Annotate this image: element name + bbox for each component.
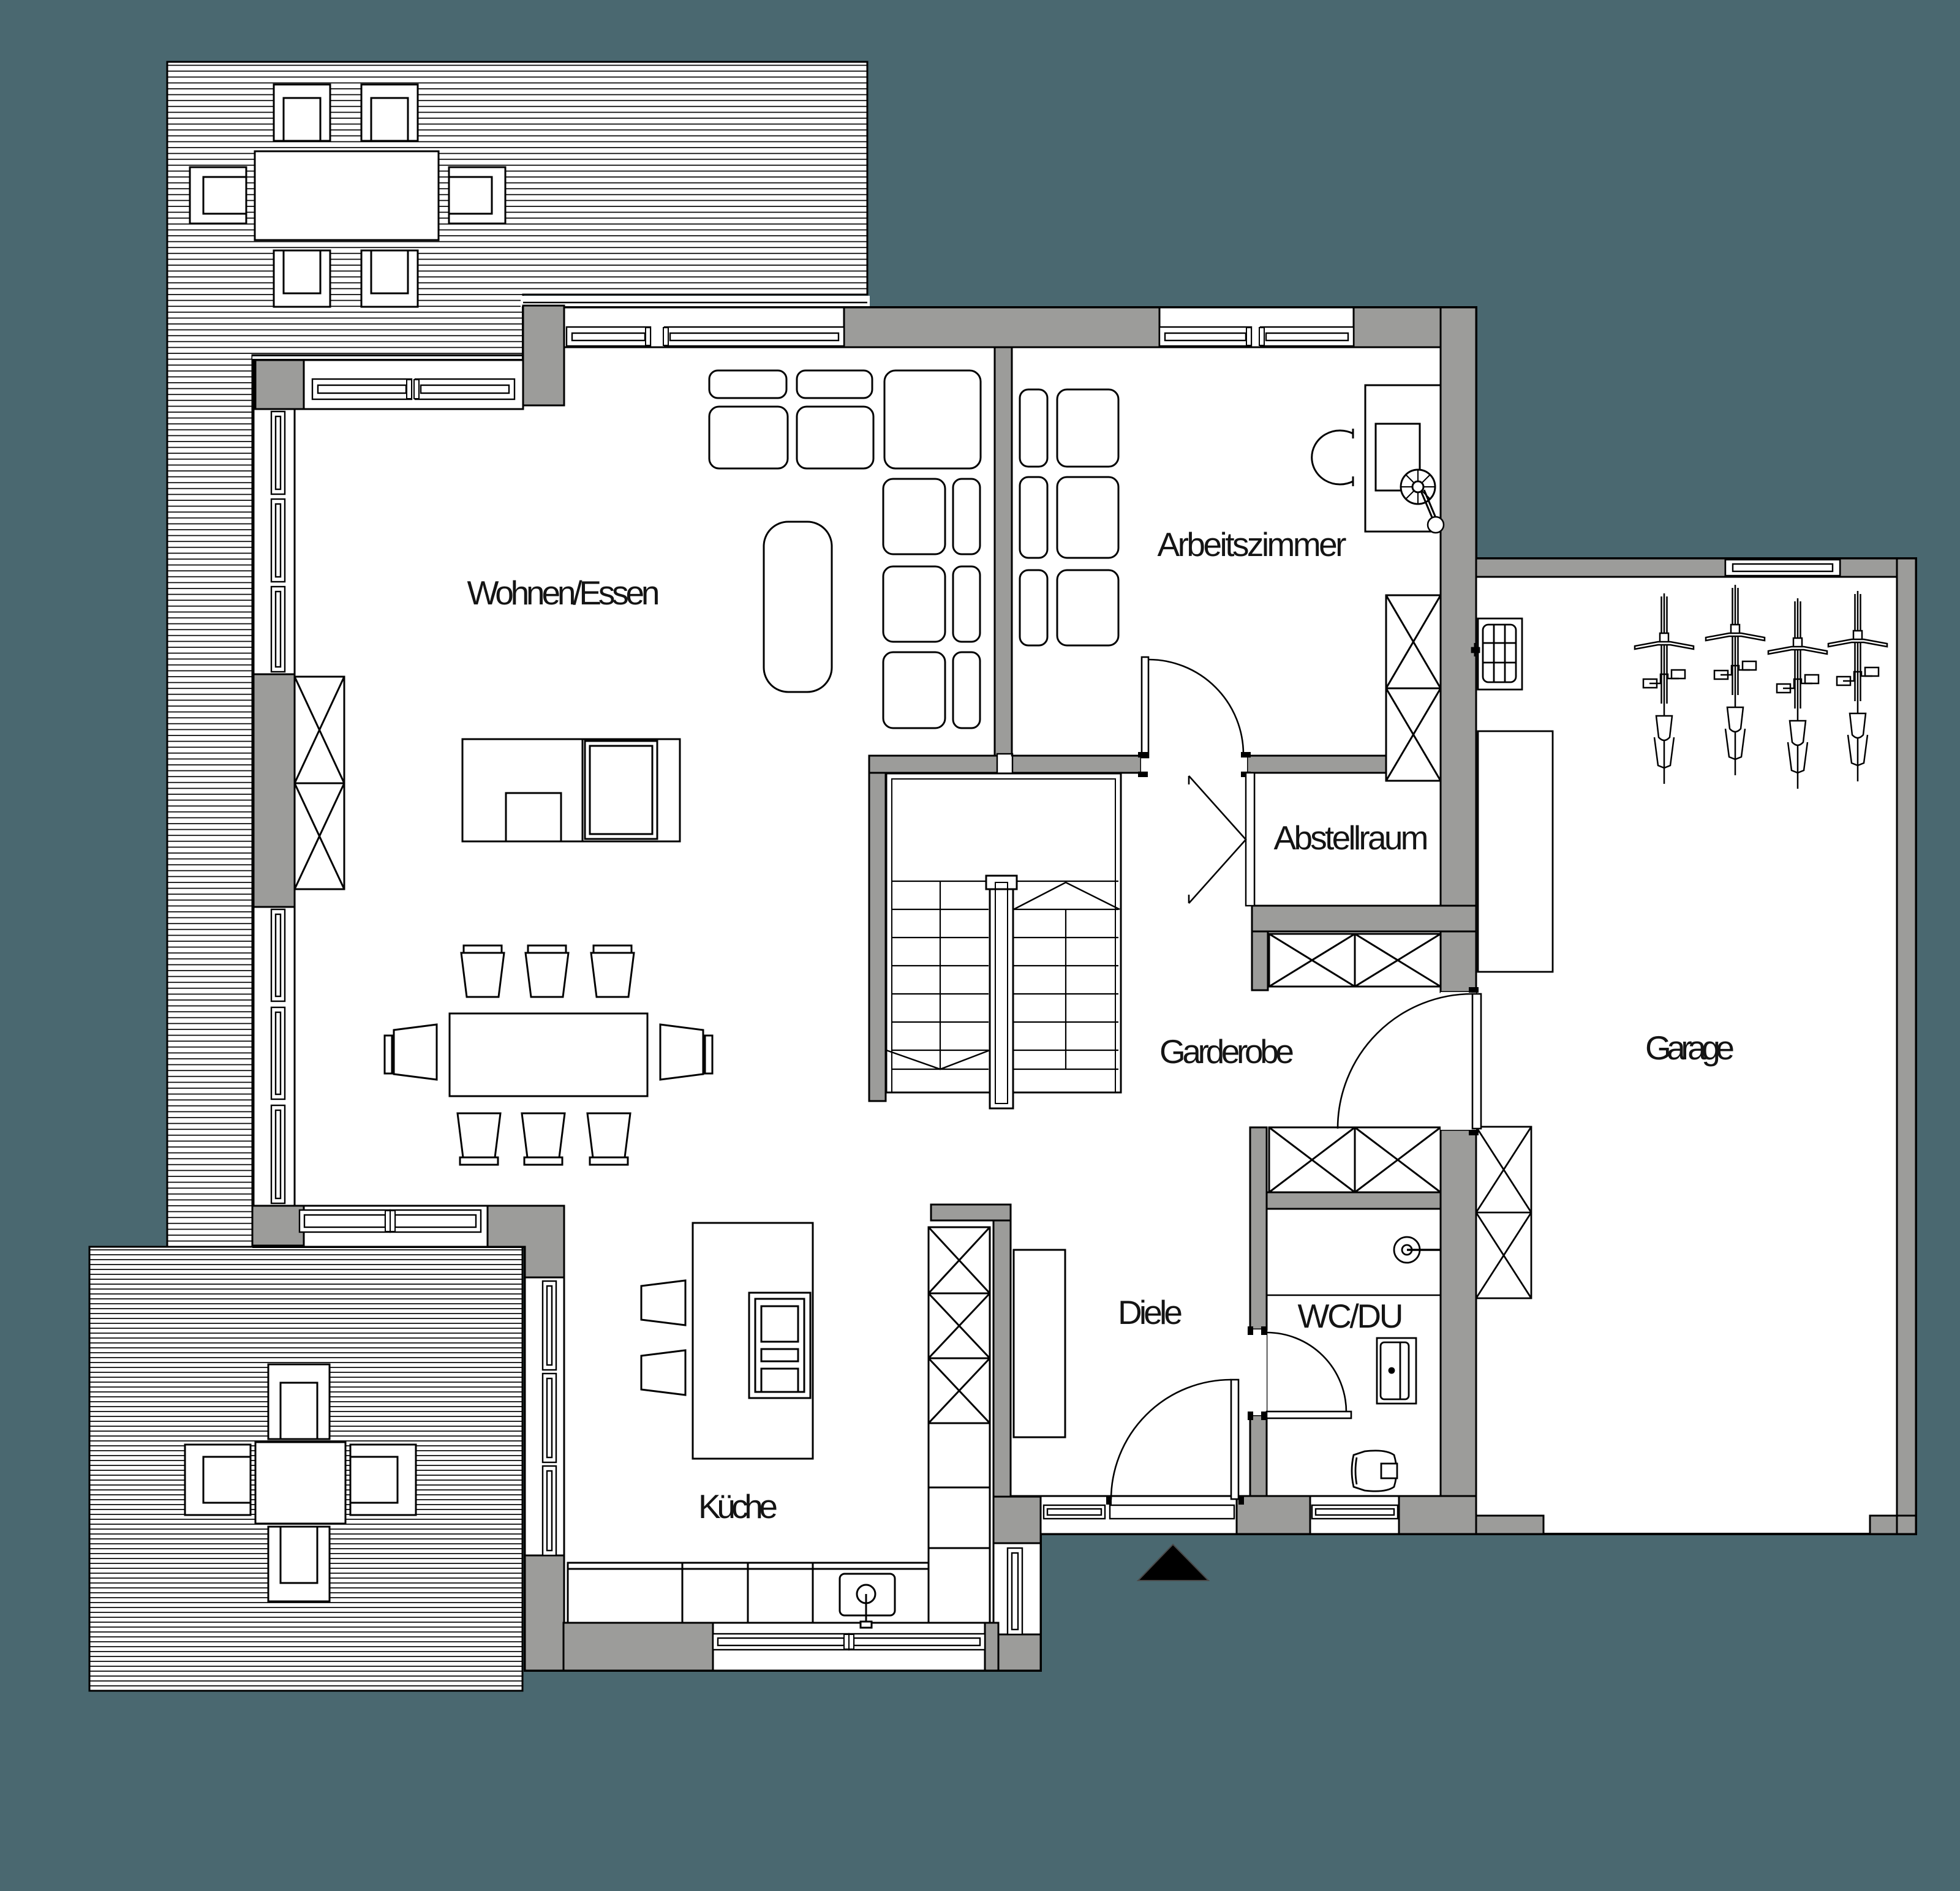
svg-text:Garage: Garage [1645, 1029, 1735, 1067]
svg-text:Diele: Diele [1118, 1293, 1183, 1331]
svg-text:Abstellraum: Abstellraum [1274, 819, 1429, 857]
svg-text:Wohnen/Essen: Wohnen/Essen [467, 574, 660, 612]
svg-text:Arbeitszimmer: Arbeitszimmer [1158, 525, 1347, 563]
svg-text:Garderobe: Garderobe [1159, 1032, 1294, 1070]
svg-text:WC/DU: WC/DU [1298, 1297, 1404, 1335]
svg-text:Küche: Küche [698, 1487, 778, 1525]
